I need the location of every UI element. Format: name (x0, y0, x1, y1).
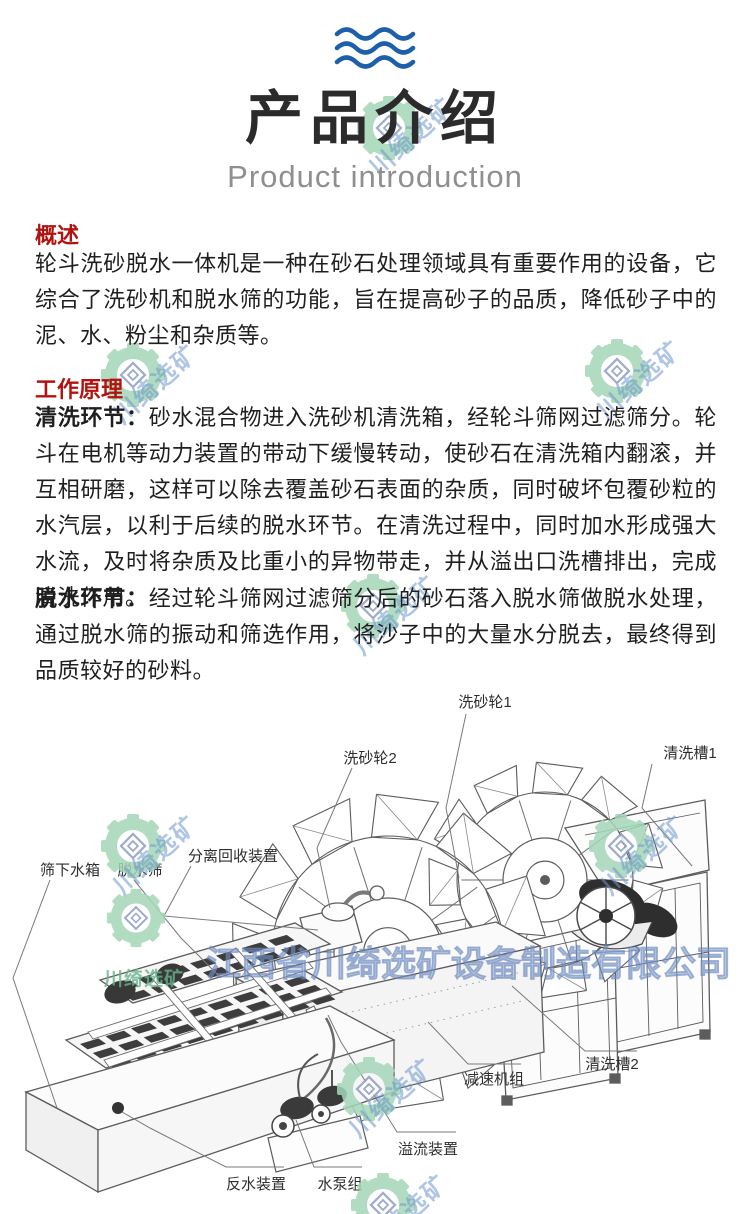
label-clean-tank-1: 清洗槽1 (663, 745, 716, 762)
page-root: 川绮选矿 川绮选矿 川绮选矿 川绮选矿 产品介绍 Product introdu… (0, 0, 750, 1214)
label-overflow-device: 溢流装置 (398, 1141, 458, 1158)
label-separation-recovery: 分离回收装置 (188, 848, 278, 865)
label-backwater-device: 反水装置 (226, 1176, 286, 1193)
dewatering-lead: 脱水环节： (35, 586, 149, 611)
label-wash-wheel-2: 洗砂轮2 (343, 750, 396, 767)
page-title: 产品介绍 (0, 82, 750, 156)
label-reducer-unit: 减速机组 (464, 1071, 524, 1088)
washing-body: 砂水混合物进入洗砂机清洗箱，经轮斗筛网过滤筛分。轮斗在电机等动力装置的带动下缓慢… (35, 405, 717, 610)
water-waves-icon (334, 26, 416, 72)
label-under-screen-tank: 筛下水箱 (40, 862, 100, 879)
page-subtitle: Product introduction (0, 158, 750, 196)
dewatering-paragraph: 脱水环节：经过轮斗筛网过滤筛分后的砂石落入脱水筛做脱水处理，通过脱水筛的振动和筛… (35, 581, 717, 689)
label-pump-group: 水泵组 (317, 1176, 362, 1193)
label-wash-wheel-1: 洗砂轮1 (458, 694, 511, 711)
machine-diagram: 洗砂轮1 洗砂轮2 清洗槽1 筛下水箱 脱水筛 分离回收装置 清洗槽2 减速机组… (0, 680, 750, 1214)
overview-paragraph: 轮斗洗砂脱水一体机是一种在砂石处理领域具有重要作用的设备，它综合了洗砂机和脱水筛… (35, 246, 717, 354)
label-dewater-screen: 脱水筛 (117, 862, 162, 879)
washing-lead: 清洗环节： (35, 405, 149, 430)
label-clean-tank-2: 清洗槽2 (585, 1056, 638, 1073)
